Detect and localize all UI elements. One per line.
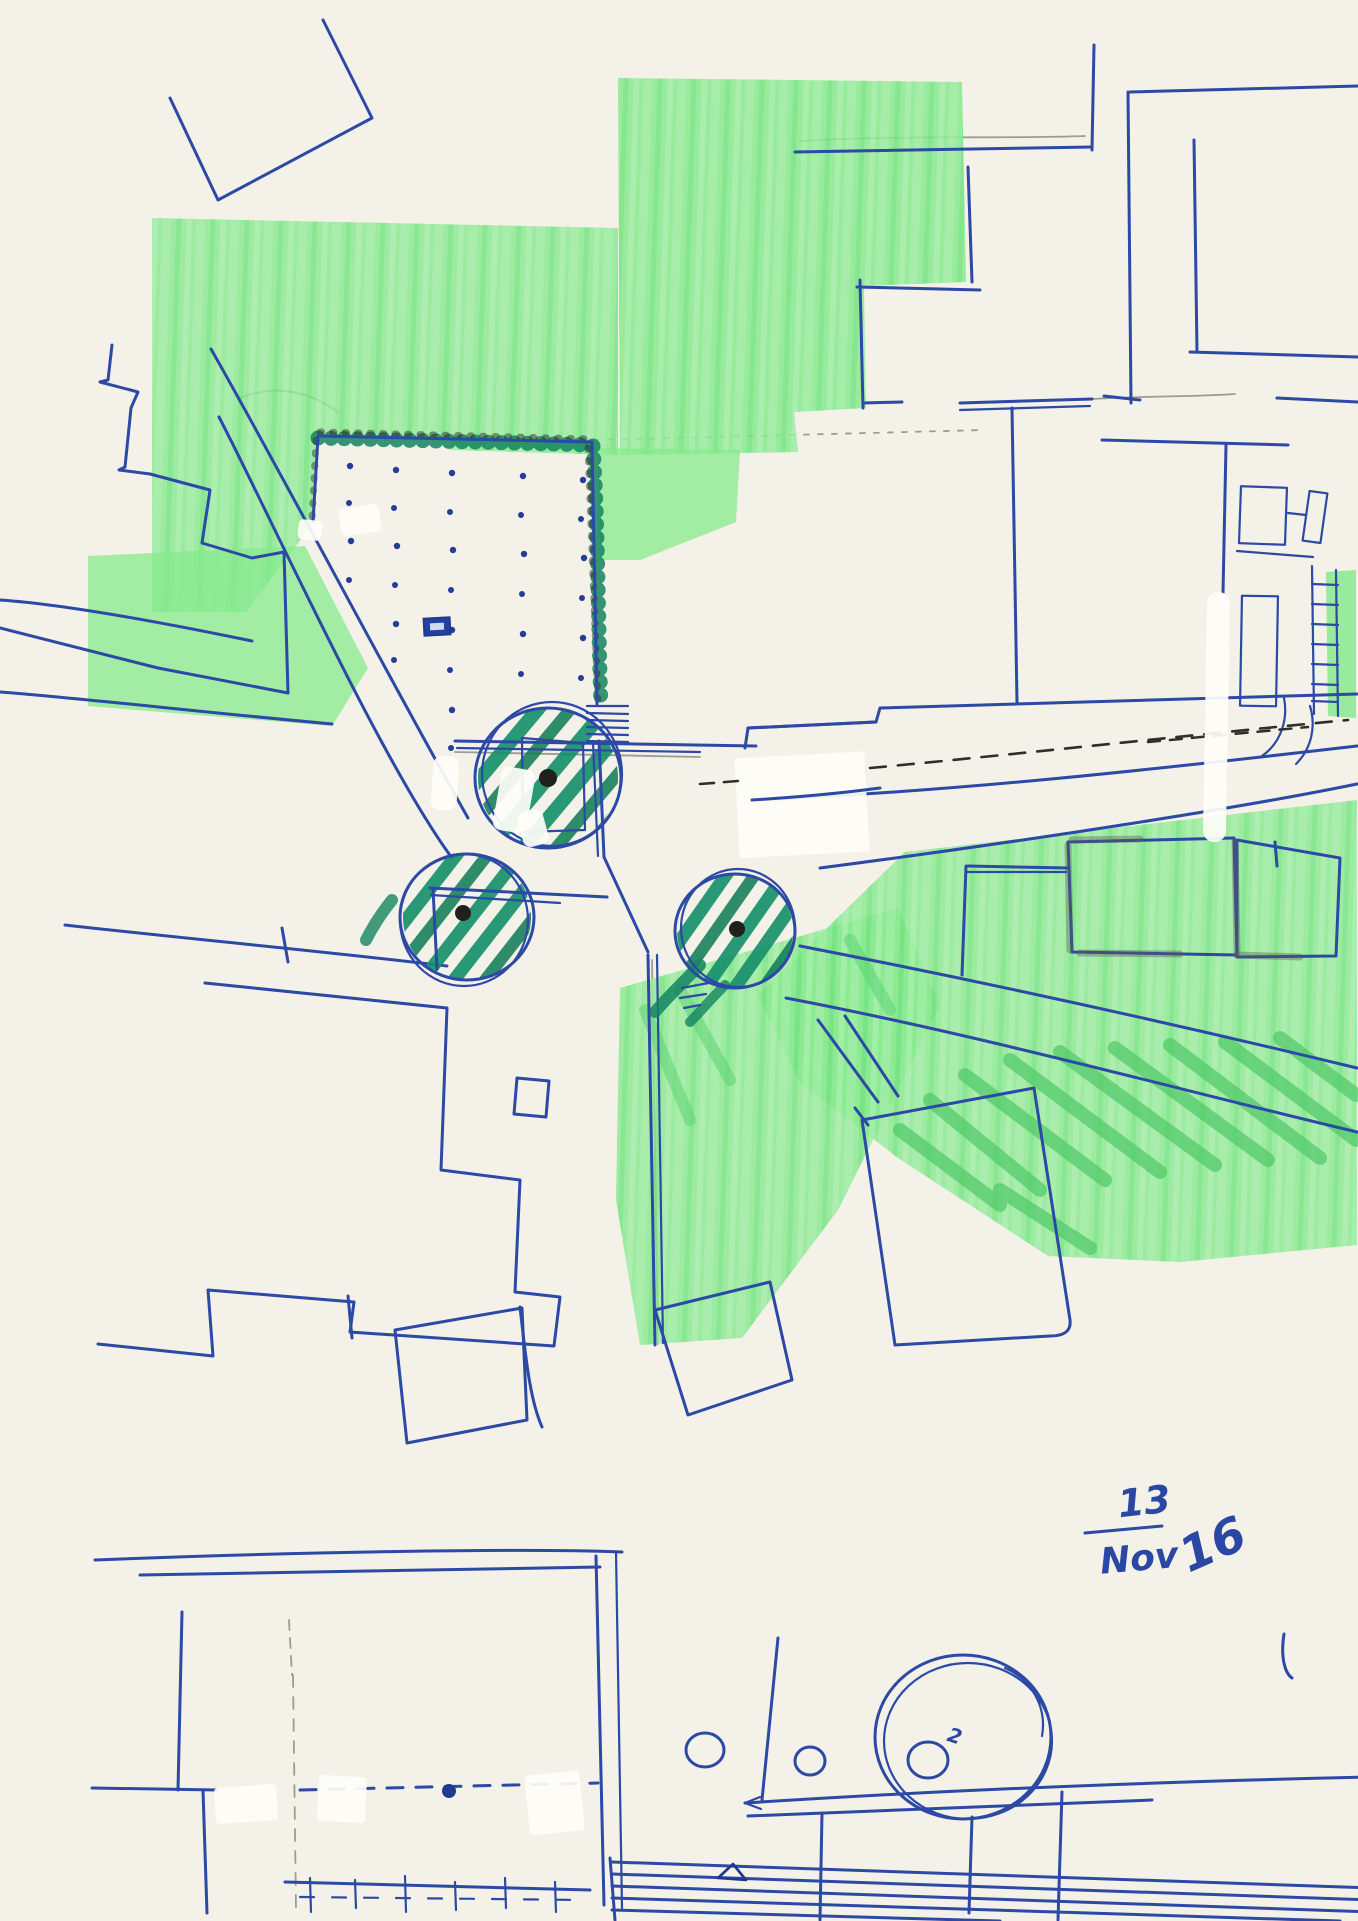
- open-square-top-left: [170, 20, 372, 200]
- small-circle-1: [686, 1733, 724, 1767]
- east-road-centerline-dashed: [870, 720, 1348, 768]
- bottom-ticks: [310, 1876, 556, 1912]
- tree-center-dot: [539, 769, 557, 787]
- date-underline: [1085, 1526, 1162, 1533]
- whiteout-streak-right: [1203, 592, 1230, 842]
- hook-mark: [1283, 1634, 1292, 1678]
- southwest-road: [65, 925, 447, 966]
- dash-blob: [442, 1784, 456, 1798]
- stairs-band: [610, 1858, 1358, 1921]
- large-circle-inner-stroke: [884, 1663, 1052, 1819]
- date-month: Nov: [1098, 1535, 1181, 1583]
- small-circle-2: [795, 1747, 825, 1775]
- site-plan-sketch: 2: [0, 0, 1358, 1921]
- whiteout-bottom-left: [214, 1784, 278, 1824]
- inner-small-circle: [908, 1742, 948, 1778]
- bl-top-edge-2: [140, 1567, 600, 1575]
- tree-center-dot: [455, 905, 471, 921]
- plaza-bench: [424, 617, 451, 635]
- green-marker-areas: [88, 78, 1357, 1345]
- building-notch: [514, 1078, 549, 1117]
- tree-center-dot: [729, 921, 745, 937]
- scanned-sketch-page: 2: [0, 0, 1358, 1921]
- date-day: 13: [1116, 1477, 1173, 1526]
- green-right-of-plaza: [598, 448, 740, 560]
- mid-left-building: [98, 983, 560, 1356]
- black-dashes-right: [1148, 727, 1308, 742]
- building-bottom-left: [92, 1550, 622, 1913]
- tilted-square-left: [395, 1308, 527, 1443]
- circle-annotation: 2: [944, 1722, 965, 1749]
- vertical-pole-line: [762, 1638, 778, 1800]
- date-year: 16: [1171, 1506, 1255, 1584]
- plaza: [313, 436, 597, 751]
- date-inscription: 13 Nov 16: [1085, 1477, 1255, 1584]
- whiteout-plaza: [338, 503, 382, 536]
- bl-top-edge-1: [95, 1550, 622, 1560]
- whiteout-junction: [734, 752, 869, 859]
